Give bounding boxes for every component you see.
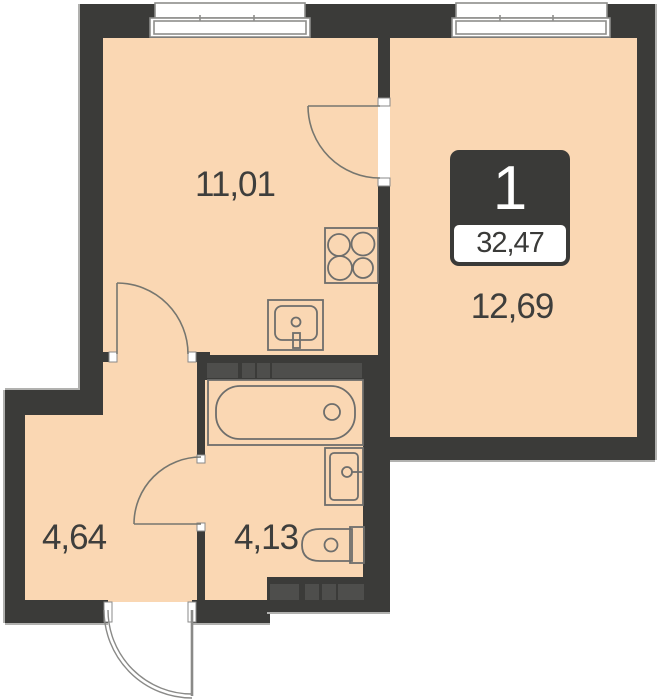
apartment-badge: 1 32,47 [450, 150, 570, 266]
badge-total-area: 32,47 [454, 225, 566, 262]
washbasin-icon [325, 448, 364, 505]
stove-icon [325, 228, 378, 283]
plan-symbols-layer [0, 0, 660, 700]
room-area-label-living-kitchen: 11,01 [195, 165, 275, 205]
room-area-label-hallway: 4,64 [42, 518, 106, 558]
badge-room-count: 1 [450, 150, 570, 226]
bathroom-door-icon [134, 457, 201, 524]
toilet-icon [302, 527, 364, 563]
room-area-label-bedroom: 12,69 [471, 287, 554, 327]
room-door-icon [308, 106, 380, 178]
bathtub-icon [208, 380, 363, 445]
kitchen-hall-door-icon [117, 283, 188, 354]
entry-door-icon [104, 610, 192, 698]
kitchen-sink-icon [268, 300, 323, 350]
window-left-icon [150, 3, 310, 37]
floor-plan: 11,01 12,69 4,64 4,13 1 32,47 [0, 0, 660, 700]
room-area-label-bathroom: 4,13 [234, 518, 298, 558]
window-right-icon [452, 3, 610, 37]
